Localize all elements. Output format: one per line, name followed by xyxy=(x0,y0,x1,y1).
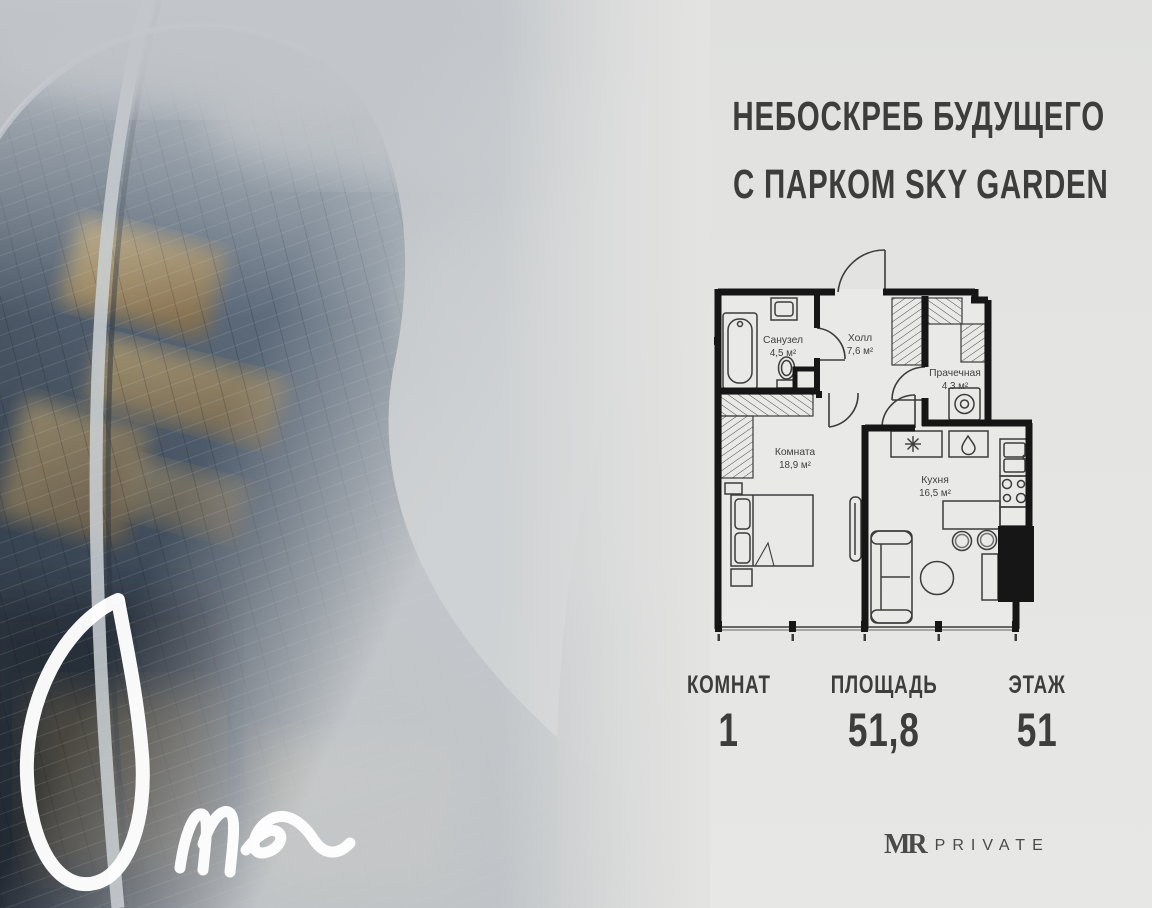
floor-plan: Санузел 4,5 м² Холл 7,6 м² Прачечная 4,3… xyxy=(695,240,1035,650)
stat-rooms-label: КОМНАТ xyxy=(687,672,771,698)
headline-line1: НЕБОСКРЕБ БУДУЩЕГО xyxy=(660,96,1096,137)
headline-line2: С ПАРКОМ SKY GARDEN xyxy=(660,164,1096,205)
hall-closet xyxy=(892,298,922,365)
one-script: One xyxy=(0,580,370,908)
stat-area: ПЛОЩАДЬ 51,8 xyxy=(809,672,959,754)
room-area-bedroom: 18,9 м² xyxy=(779,460,812,471)
stat-area-label: ПЛОЩАДЬ xyxy=(831,672,938,698)
stat-floor-value: 51 xyxy=(1017,706,1058,754)
room-area-bathroom: 4,5 м² xyxy=(770,348,797,359)
utility-shaft xyxy=(998,526,1034,602)
room-label-laundry: Прачечная xyxy=(929,368,981,379)
stat-area-value: 51,8 xyxy=(848,706,920,754)
script-letter-e xyxy=(246,817,350,854)
laundry-closet-top xyxy=(928,298,962,324)
room-label-bedroom: Комната xyxy=(775,447,816,458)
room-label-hall: Холл xyxy=(848,333,872,344)
room-area-laundry: 4,3 м² xyxy=(942,381,969,392)
bedroom-wardrobe-strip xyxy=(721,394,813,416)
script-letter-n xyxy=(180,812,234,872)
mr-private-logo: MRPRIVATE xyxy=(884,829,1050,861)
logo-mr-monogram: MR xyxy=(884,829,925,860)
headline-line1-text: НЕБОСКРЕБ БУДУЩЕГО xyxy=(732,96,1104,137)
stat-floor-label: ЭТАЖ xyxy=(1008,672,1065,698)
wall-tick xyxy=(714,337,718,345)
stat-rooms-value: 1 xyxy=(719,706,739,754)
bedroom-wardrobe-tall xyxy=(721,416,753,478)
room-label-bathroom: Санузел xyxy=(763,335,803,346)
logo-private-word: PRIVATE xyxy=(935,837,1050,854)
headline-line2-text: С ПАРКОМ SKY GARDEN xyxy=(733,164,1108,205)
script-letter-o xyxy=(27,600,143,884)
room-area-hall: 7,6 м² xyxy=(847,346,874,357)
laundry-closet-right xyxy=(961,324,985,362)
stat-rooms: КОМНАТ 1 xyxy=(654,672,804,754)
room-label-kitchen: Кухня xyxy=(921,475,949,486)
entry-door xyxy=(838,250,885,292)
room-area-kitchen: 16,5 м² xyxy=(919,488,952,499)
stat-floor: ЭТАЖ 51 xyxy=(962,672,1112,754)
promo-poster: One НЕБОСКРЕБ БУДУЩЕГО С ПАРКОМ SKY GARD… xyxy=(0,0,1152,908)
